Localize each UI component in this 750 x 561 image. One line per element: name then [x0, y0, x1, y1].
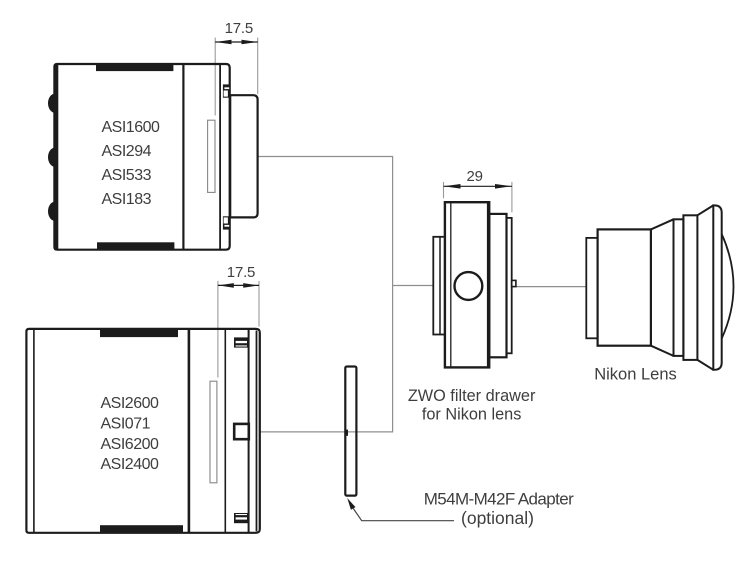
svg-text:ASI1600: ASI1600 [102, 119, 160, 136]
svg-text:ASI071: ASI071 [101, 416, 151, 433]
svg-text:Nikon Lens: Nikon Lens [594, 365, 677, 383]
svg-text:17.5: 17.5 [227, 264, 255, 281]
svg-text:(optional): (optional) [461, 508, 534, 528]
svg-text:17.5: 17.5 [225, 20, 253, 37]
svg-text:29: 29 [466, 168, 482, 185]
svg-text:ASI2600: ASI2600 [101, 395, 159, 412]
svg-text:M54M-M42F Adapter: M54M-M42F Adapter [424, 489, 574, 508]
svg-text:ZWO filter drawer: ZWO filter drawer [408, 387, 536, 405]
svg-text:ASI533: ASI533 [102, 167, 152, 184]
svg-text:ASI6200: ASI6200 [101, 436, 159, 453]
svg-text:ASI2400: ASI2400 [101, 456, 159, 473]
svg-text:ASI183: ASI183 [102, 191, 152, 208]
svg-text:for Nikon lens: for Nikon lens [422, 405, 522, 423]
svg-text:ASI294: ASI294 [102, 143, 152, 160]
